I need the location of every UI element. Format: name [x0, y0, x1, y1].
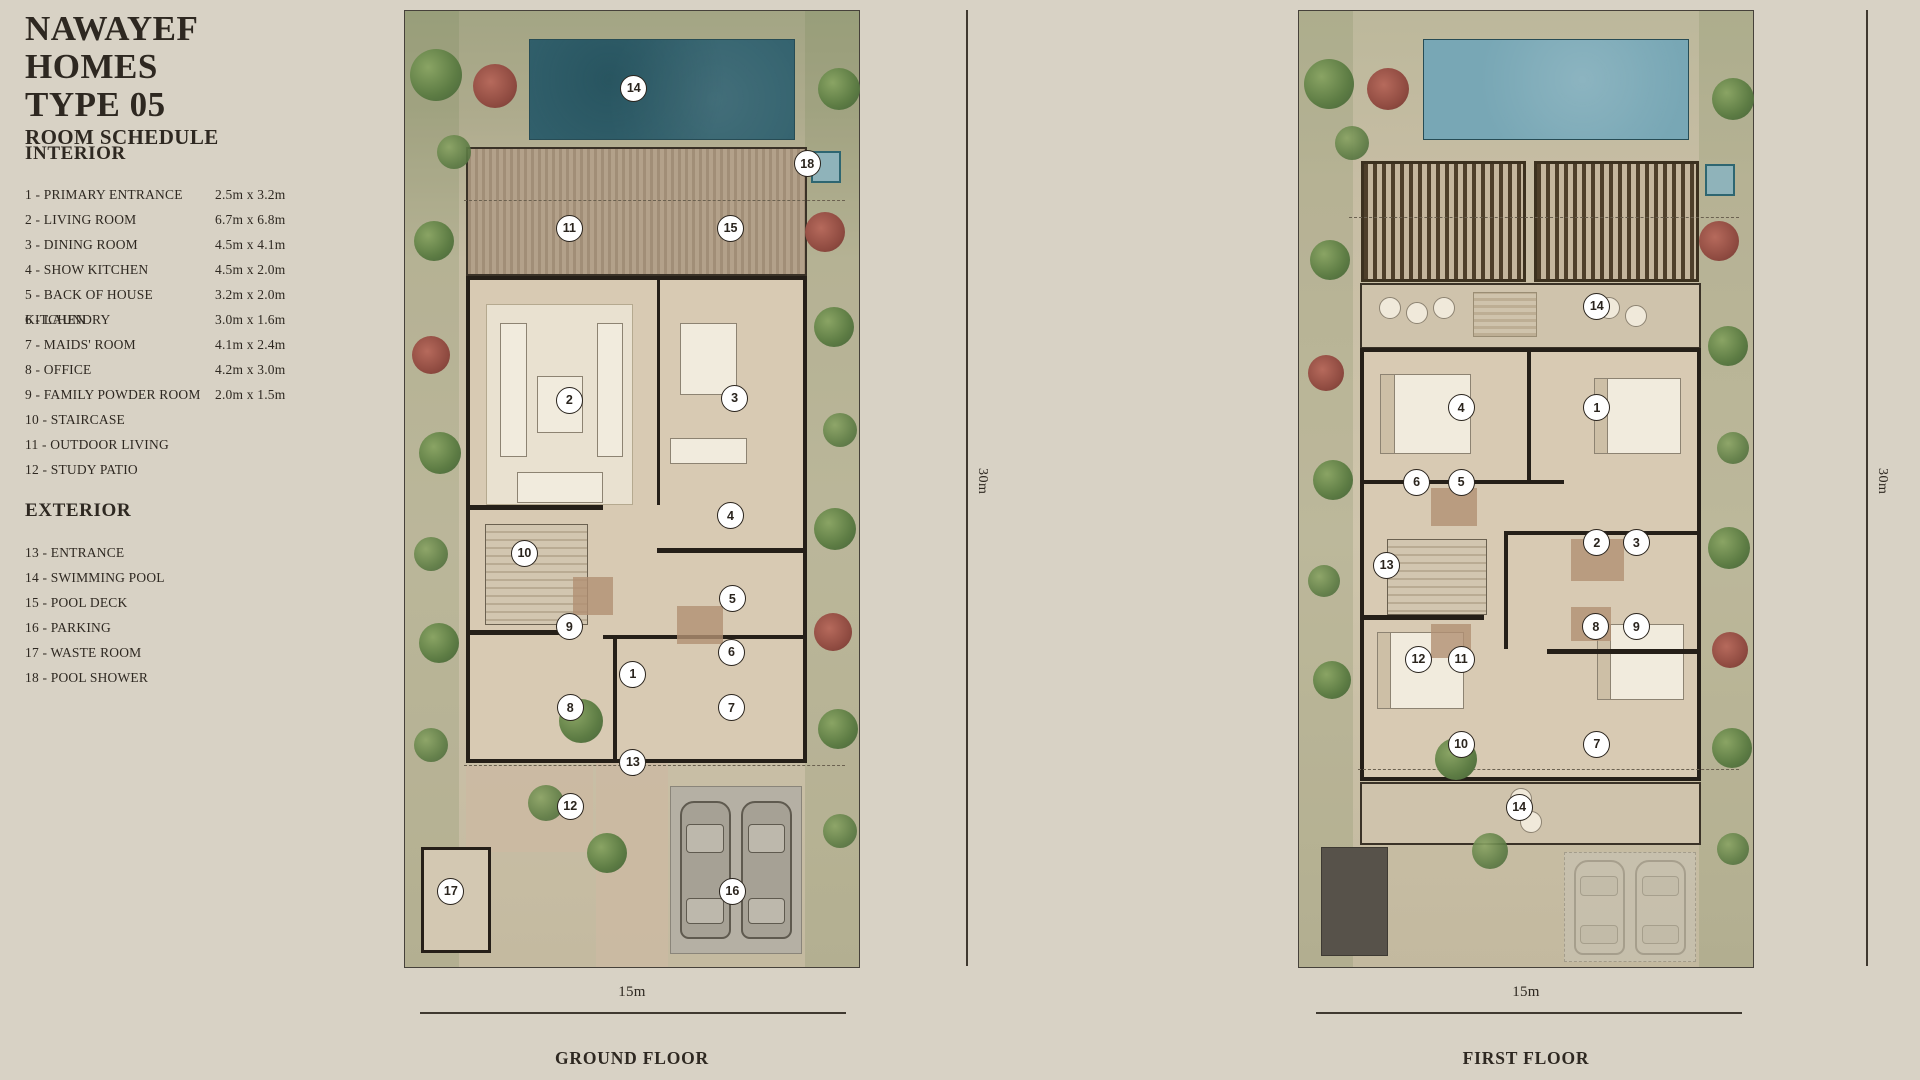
room-marker-14: 14: [1506, 794, 1533, 821]
legend-room-name: 8 - OFFICE: [25, 357, 215, 382]
room-marker-14: 14: [620, 75, 647, 102]
legend-room-name: 10 - STAIRCASE: [25, 407, 215, 432]
legend-row: 14 - SWIMMING POOL: [25, 565, 335, 590]
room-marker-3: 3: [1623, 529, 1650, 556]
room-marker-8: 8: [557, 694, 584, 721]
legend-row: 5 - BACK OF HOUSE KITCHEN3.2m x 2.0m: [25, 282, 335, 307]
room-marker-18: 18: [794, 150, 821, 177]
room-marker-9: 9: [556, 613, 583, 640]
ground-height-dimension-line: [966, 10, 968, 966]
room-marker-4: 4: [1448, 394, 1475, 421]
room-marker-5: 5: [1448, 469, 1475, 496]
interior-heading: INTERIOR: [25, 143, 126, 165]
room-marker-14: 14: [1583, 293, 1610, 320]
legend-room-name: 6 - LAUNDRY: [25, 307, 215, 332]
interior-list: 1 - PRIMARY ENTRANCE2.5m x 3.2m2 - LIVIN…: [25, 182, 335, 482]
legend-room-name: 13 - ENTRANCE: [25, 540, 215, 565]
ground-width-label: 15m: [404, 984, 860, 1001]
legend-room-dims: 4.5m x 2.0m: [215, 257, 335, 282]
room-marker-10: 10: [511, 540, 538, 567]
ground-markers: 141811152341059618713121716: [405, 11, 859, 967]
legend-row: 18 - POOL SHOWER: [25, 665, 335, 690]
legend-row: 9 - FAMILY POWDER ROOM2.0m x 1.5m: [25, 382, 335, 407]
room-marker-2: 2: [1583, 529, 1610, 556]
legend-row: 12 - STUDY PATIO: [25, 457, 335, 482]
exterior-heading: EXTERIOR: [25, 500, 131, 522]
room-marker-17: 17: [437, 878, 464, 905]
legend-room-name: 9 - FAMILY POWDER ROOM: [25, 382, 215, 407]
floorplan-sheet: { "header": { "title_line1": "NAWAYEF HO…: [0, 0, 1920, 1080]
legend-room-dims: [215, 590, 335, 615]
legend-row: 7 - MAIDS' ROOM4.1m x 2.4m: [25, 332, 335, 357]
first-width-label: 15m: [1298, 984, 1754, 1001]
legend-row: 2 - LIVING ROOM6.7m x 6.8m: [25, 207, 335, 232]
legend-room-dims: 6.7m x 6.8m: [215, 207, 335, 232]
legend-room-name: 7 - MAIDS' ROOM: [25, 332, 215, 357]
legend-room-dims: [215, 640, 335, 665]
legend-room-name: 12 - STUDY PATIO: [25, 457, 215, 482]
room-marker-1: 1: [1583, 394, 1610, 421]
room-marker-4: 4: [717, 502, 744, 529]
legend-room-dims: [215, 565, 335, 590]
legend-room-dims: 4.1m x 2.4m: [215, 332, 335, 357]
legend-room-dims: [215, 432, 335, 457]
legend-row: 1 - PRIMARY ENTRANCE2.5m x 3.2m: [25, 182, 335, 207]
legend-room-name: 5 - BACK OF HOUSE KITCHEN: [25, 282, 215, 307]
legend-room-name: 14 - SWIMMING POOL: [25, 565, 215, 590]
legend-row: 15 - POOL DECK: [25, 590, 335, 615]
exterior-list: 13 - ENTRANCE14 - SWIMMING POOL15 - POOL…: [25, 540, 335, 690]
room-marker-5: 5: [719, 585, 746, 612]
room-marker-11: 11: [556, 215, 583, 242]
room-marker-12: 12: [1405, 646, 1432, 673]
room-marker-15: 15: [717, 215, 744, 242]
legend-room-dims: [215, 665, 335, 690]
legend-room-dims: [215, 407, 335, 432]
room-marker-12: 12: [557, 793, 584, 820]
legend-room-dims: [215, 540, 335, 565]
room-marker-10: 10: [1448, 731, 1475, 758]
ground-floor-plan: 141811152341059618713121716: [404, 10, 860, 968]
legend-room-dims: [215, 457, 335, 482]
room-marker-11: 11: [1448, 646, 1475, 673]
legend-row: 6 - LAUNDRY3.0m x 1.6m: [25, 307, 335, 332]
first-floor-caption: FIRST FLOOR: [1298, 1048, 1754, 1069]
ground-width-dimension-line: [420, 1012, 846, 1014]
room-marker-8: 8: [1582, 613, 1609, 640]
ground-height-label: 30m: [974, 468, 990, 494]
legend-room-dims: 3.0m x 1.6m: [215, 307, 335, 332]
first-markers: 144165231389121110714: [1299, 11, 1753, 967]
legend-room-dims: [215, 615, 335, 640]
legend-row: 11 - OUTDOOR LIVING: [25, 432, 335, 457]
legend-room-name: 11 - OUTDOOR LIVING: [25, 432, 215, 457]
legend-room-name: 17 - WASTE ROOM: [25, 640, 215, 665]
ground-floor-caption: GROUND FLOOR: [404, 1048, 860, 1069]
legend-room-dims: 4.2m x 3.0m: [215, 357, 335, 382]
legend-room-dims: 2.5m x 3.2m: [215, 182, 335, 207]
first-width-dimension-line: [1316, 1012, 1742, 1014]
room-marker-3: 3: [721, 385, 748, 412]
legend-room-name: 1 - PRIMARY ENTRANCE: [25, 182, 215, 207]
legend-row: 10 - STAIRCASE: [25, 407, 335, 432]
legend-room-name: 15 - POOL DECK: [25, 590, 215, 615]
legend-room-name: 3 - DINING ROOM: [25, 232, 215, 257]
first-height-label: 30m: [1874, 468, 1890, 494]
legend-row: 13 - ENTRANCE: [25, 540, 335, 565]
legend-row: 17 - WASTE ROOM: [25, 640, 335, 665]
room-marker-16: 16: [719, 878, 746, 905]
legend-room-name: 16 - PARKING: [25, 615, 215, 640]
sheet-title-line1: NAWAYEF HOMES: [25, 10, 335, 86]
room-marker-13: 13: [1373, 552, 1400, 579]
legend-row: 8 - OFFICE4.2m x 3.0m: [25, 357, 335, 382]
room-marker-7: 7: [718, 694, 745, 721]
room-schedule-panel: NAWAYEF HOMES TYPE 05 ROOM SCHEDULE INTE…: [25, 10, 335, 150]
room-marker-6: 6: [1403, 469, 1430, 496]
legend-row: 4 - SHOW KITCHEN4.5m x 2.0m: [25, 257, 335, 282]
first-height-dimension-line: [1866, 10, 1868, 966]
room-marker-9: 9: [1623, 613, 1650, 640]
legend-row: 3 - DINING ROOM4.5m x 4.1m: [25, 232, 335, 257]
legend-room-name: 2 - LIVING ROOM: [25, 207, 215, 232]
first-floor-plan: 144165231389121110714: [1298, 10, 1754, 968]
legend-row: 16 - PARKING: [25, 615, 335, 640]
room-marker-7: 7: [1583, 731, 1610, 758]
room-marker-13: 13: [619, 749, 646, 776]
legend-room-name: 4 - SHOW KITCHEN: [25, 257, 215, 282]
legend-room-dims: 4.5m x 4.1m: [215, 232, 335, 257]
sheet-title-line2: TYPE 05: [25, 86, 335, 124]
legend-room-dims: 3.2m x 2.0m: [215, 282, 335, 307]
room-marker-2: 2: [556, 387, 583, 414]
legend-room-name: 18 - POOL SHOWER: [25, 665, 215, 690]
room-marker-6: 6: [718, 639, 745, 666]
legend-room-dims: 2.0m x 1.5m: [215, 382, 335, 407]
room-marker-1: 1: [619, 661, 646, 688]
